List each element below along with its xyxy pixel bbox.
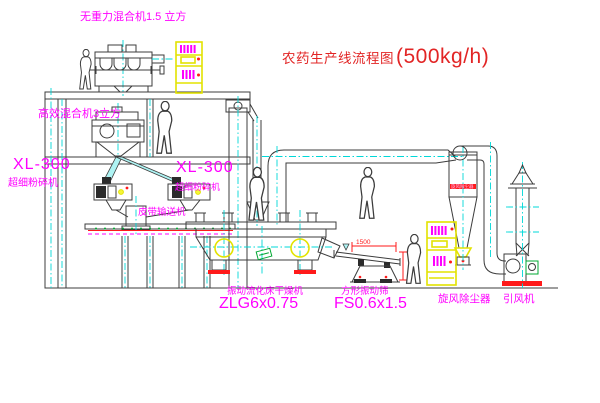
control-cabinet-bottom: [427, 222, 456, 285]
exhaust-stack: [506, 162, 539, 288]
label-dryer-model: ZLG6x0.75: [219, 296, 298, 313]
cyclone-separator: [449, 146, 477, 270]
square-sieve: [334, 244, 400, 283]
label-gravity-mixer: 无重力混合机1.5 立方: [80, 12, 186, 24]
label-mill-left-model: XL-300: [13, 157, 71, 174]
dryer-logo: [256, 248, 272, 259]
label-mill-right-model: XL-300: [176, 160, 234, 177]
title-text: 农药生产线流程图: [282, 47, 394, 67]
cyclone-band-label: 旋风除尘器: [451, 184, 474, 190]
title-capacity: (500kg/h): [396, 45, 489, 69]
label-fan: 引风机: [503, 294, 535, 305]
label-high-eff-mixer: 高效混合机3立方: [38, 109, 121, 121]
conveyor-legs: [122, 236, 210, 288]
label-belt-conveyor: 皮带输送机: [138, 208, 186, 218]
label-cyclone: 旋风除尘器: [438, 294, 491, 305]
page-title: 农药生产线流程图 (500kg/h): [282, 45, 489, 69]
person-figure: [360, 167, 375, 218]
label-sieve-model: FS0.6x1.5: [334, 296, 407, 313]
label-mill-left-name: 超细粉碎机: [8, 179, 58, 190]
person-figure: [157, 101, 172, 153]
person-figure: [407, 234, 421, 283]
feed-split-chute: [103, 157, 181, 182]
label-mill-right-name: 超细粉碎机: [175, 183, 220, 192]
person-figure: [80, 49, 91, 89]
dimension-1500: 1500: [356, 239, 370, 246]
induced-draft-fan: [502, 243, 542, 286]
person-figure: [249, 167, 264, 220]
dryer-top-stubs: [194, 213, 318, 222]
gravity-mixer: [85, 40, 173, 96]
control-cabinet-top: [176, 42, 202, 93]
cad-flow-diagram: 农药生产线流程图 (500kg/h) 无重力混合机1.5 立方 高效混合机3立方…: [0, 0, 600, 403]
